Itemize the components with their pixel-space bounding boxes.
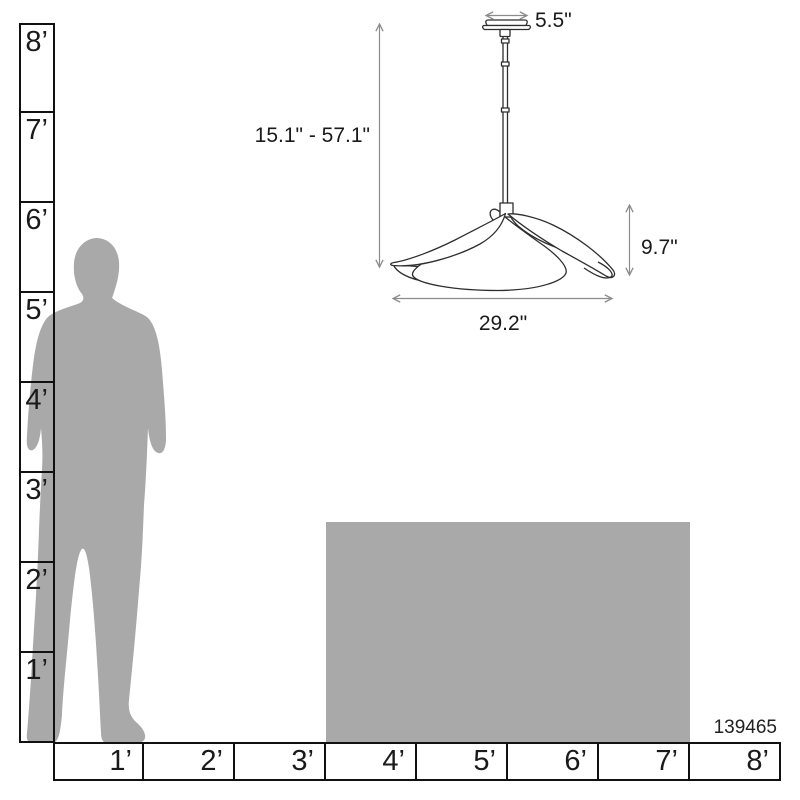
horizontal-ruler-cell-2ft: 2’ [144, 742, 235, 781]
diagram-art [0, 0, 800, 800]
shade-width-label: 29.2" [443, 312, 563, 336]
ruler-label: 7’ [655, 745, 678, 778]
ruler-label: 7’ [25, 113, 48, 147]
ruler-label: 4’ [25, 383, 48, 417]
furniture-block-silhouette [326, 522, 690, 743]
ruler-label: 2’ [200, 745, 223, 778]
ruler-label: 4’ [382, 745, 405, 778]
horizontal-ruler-cell-8ft: 8’ [690, 742, 781, 781]
horizontal-ruler-cell-6ft: 6’ [508, 742, 599, 781]
vertical-ruler-cell-1ft: 1’ [19, 653, 55, 743]
vertical-ruler-cell-6ft: 6’ [19, 203, 55, 293]
lamp-rod-joint [502, 62, 510, 66]
horizontal-ruler-cell-5ft: 5’ [417, 742, 508, 781]
vertical-ruler-cell-4ft: 4’ [19, 383, 55, 473]
dimension-diagram: 8’ 7’ 6’ 5’ 4’ 3’ 2’ 1’ 1’ 2’ 3’ 4’ 5’ 6… [0, 0, 800, 800]
pendant-lamp-drawing [391, 20, 615, 291]
ruler-label: 8’ [25, 25, 48, 59]
horizontal-ruler-cell-1ft: 1’ [53, 742, 144, 781]
vertical-ruler-cell-7ft: 7’ [19, 113, 55, 203]
ruler-label: 8’ [746, 745, 769, 778]
ruler-label: 1’ [25, 653, 48, 687]
vertical-ruler-cell-5ft: 5’ [19, 293, 55, 383]
lamp-canopy [486, 20, 527, 26]
ruler-label: 3’ [25, 473, 48, 507]
ruler-label: 2’ [25, 563, 48, 597]
ruler-label: 1’ [109, 745, 132, 778]
ruler-label: 3’ [291, 745, 314, 778]
product-code: 139465 [627, 717, 777, 739]
ruler-label: 6’ [564, 745, 587, 778]
lamp-rod-joint [502, 39, 510, 43]
height-range-label: 15.1" - 57.1" [200, 124, 370, 148]
canopy-width-label: 5.5" [535, 9, 572, 33]
horizontal-ruler-cell-3ft: 3’ [235, 742, 326, 781]
vertical-ruler-cell-2ft: 2’ [19, 563, 55, 653]
ruler-label: 5’ [473, 745, 496, 778]
horizontal-ruler-cell-7ft: 7’ [599, 742, 690, 781]
vertical-ruler-cell-8ft: 8’ [19, 23, 55, 113]
shade-height-label: 9.7" [641, 236, 678, 260]
lamp-rod-joint [502, 108, 510, 112]
ruler-label: 6’ [25, 203, 48, 237]
vertical-ruler-cell-3ft: 3’ [19, 473, 55, 563]
lamp-stem-collar [500, 30, 510, 37]
ruler-label: 5’ [25, 293, 48, 327]
horizontal-ruler-cell-4ft: 4’ [326, 742, 417, 781]
